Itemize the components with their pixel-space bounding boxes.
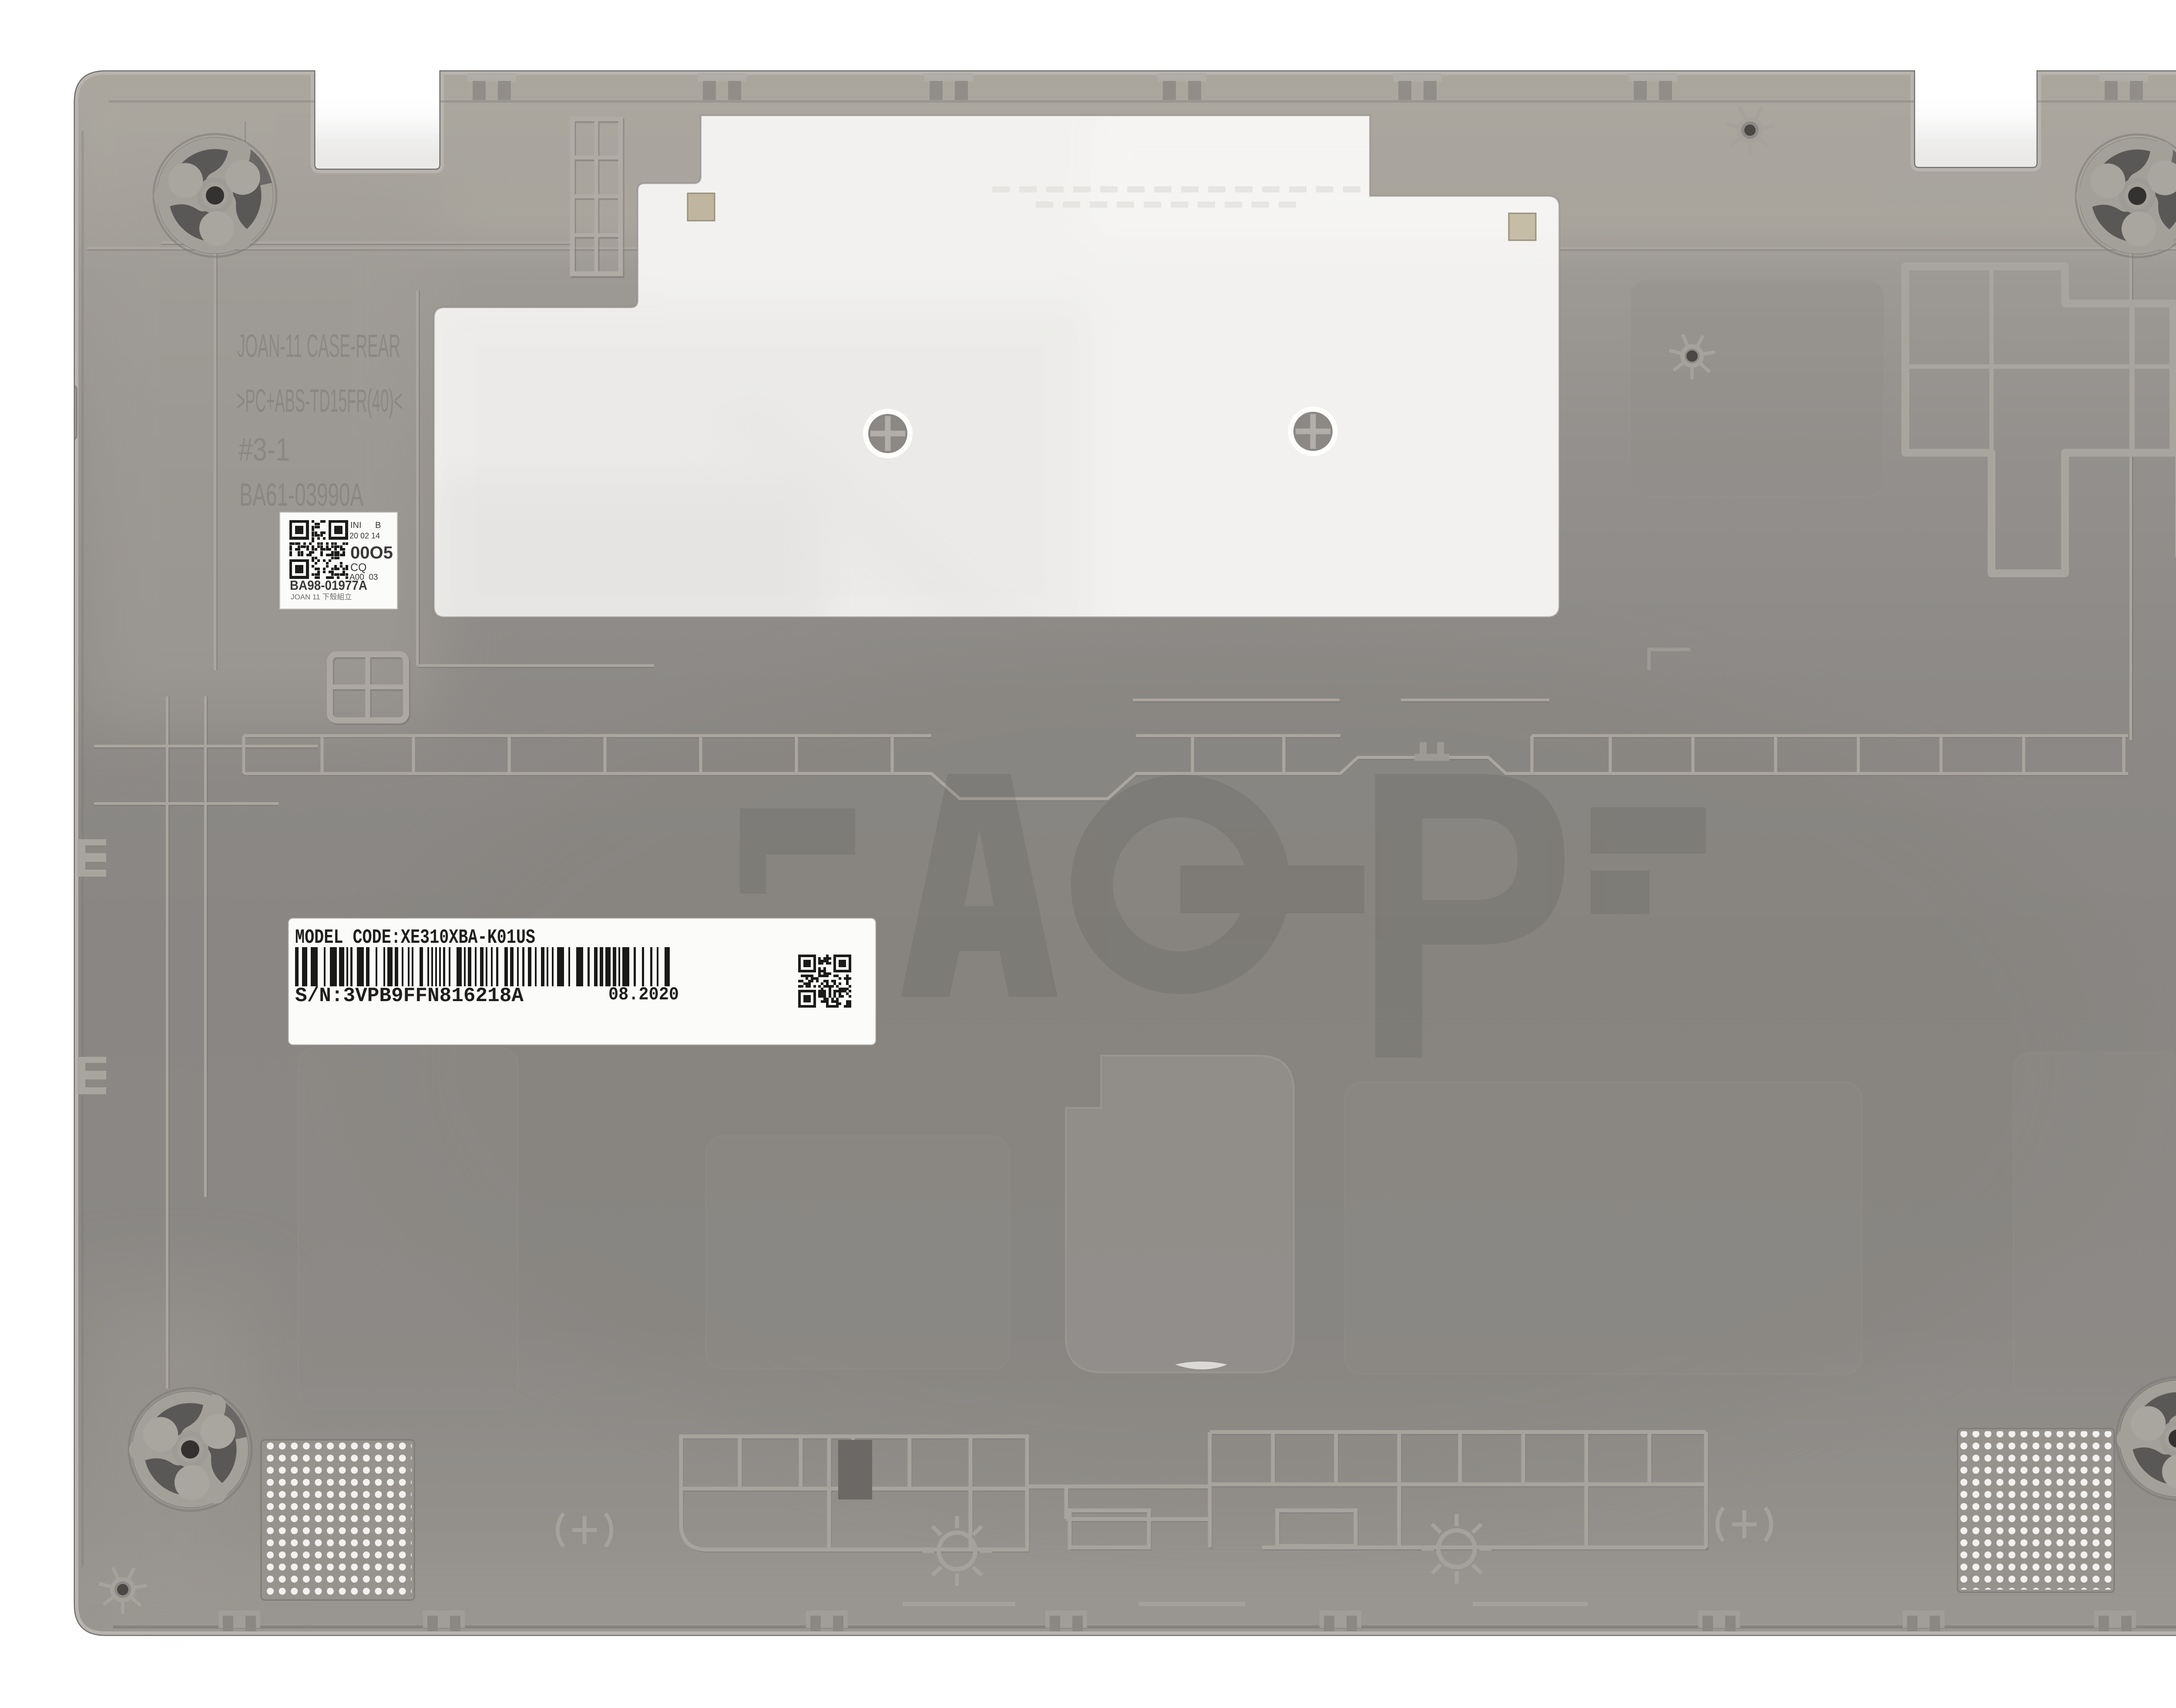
svg-text:B: B (375, 521, 381, 530)
svg-text:BA98-01977A: BA98-01977A (290, 578, 367, 593)
svg-text:>PC+ABS-TD15FR(40)<: >PC+ABS-TD15FR(40)< (236, 383, 403, 419)
svg-text:S/N:3VPB9FFN816218A: S/N:3VPB9FFN816218A (295, 985, 524, 1007)
svg-text:INI: INI (350, 521, 362, 530)
svg-text:JOAN-11 CASE-REAR: JOAN-11 CASE-REAR (237, 328, 400, 364)
svg-text:MODEL CODE:XE310XBA-K01US: MODEL CODE:XE310XBA-K01US (295, 926, 535, 949)
svg-text:20 02 14: 20 02 14 (349, 531, 380, 540)
svg-text:BA61-03990A: BA61-03990A (239, 477, 363, 513)
svg-text:CQ: CQ (350, 561, 367, 574)
svg-text:JOAN 11 下殼組立: JOAN 11 下殼組立 (291, 593, 352, 601)
svg-text:#3-1: #3-1 (238, 431, 290, 467)
svg-text:00O5: 00O5 (350, 543, 393, 562)
svg-text:08.2020: 08.2020 (608, 984, 679, 1005)
